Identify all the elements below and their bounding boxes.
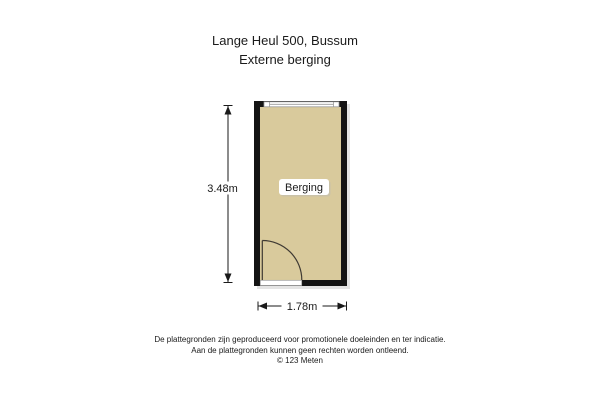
dim-v-arrow-down (225, 274, 232, 283)
disclaimer-line-3: © 123 Meten (0, 356, 600, 367)
dim-v-arrow-up (225, 106, 232, 115)
page-title: Lange Heul 500, Bussum (85, 31, 485, 50)
door-opening (260, 280, 301, 285)
dim-height-label: 3.48m (207, 183, 238, 195)
disclaimer-line-2: Aan de plattegronden kunnen geen rechten… (0, 346, 600, 357)
floorplan: Berging 3.48m 1.78m (195, 95, 365, 320)
dim-h-arrow-right (338, 303, 347, 310)
room-label-text: Berging (285, 182, 323, 194)
window (264, 102, 339, 107)
room-label: Berging (279, 179, 331, 197)
dim-width-label: 1.78m (287, 301, 318, 313)
dim-h-arrow-left (259, 303, 268, 310)
disclaimer: De plattegronden zijn geproduceerd voor … (0, 335, 600, 367)
disclaimer-line-1: De plattegronden zijn geproduceerd voor … (0, 335, 600, 346)
page-subtitle: Externe berging (85, 50, 485, 69)
plan-header: Lange Heul 500, Bussum Externe berging (85, 31, 485, 69)
